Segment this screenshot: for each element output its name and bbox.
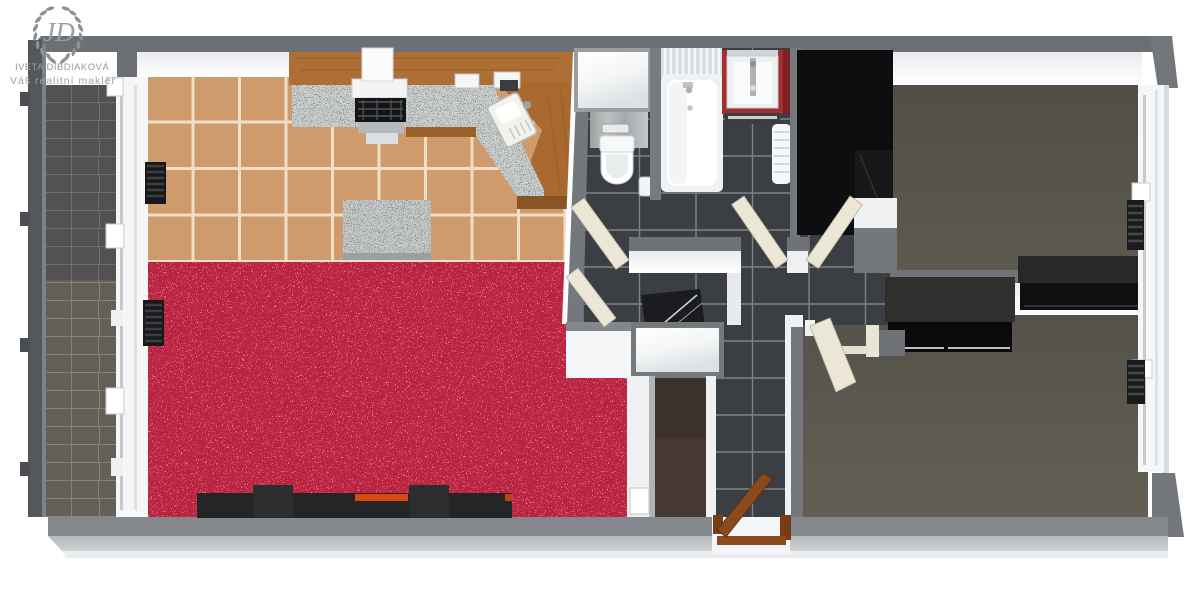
- svg-text:JD: JD: [43, 17, 75, 47]
- svg-text:Váš realitní makléř: Váš realitní makléř: [10, 75, 116, 87]
- svg-text:IVETA DIBDIAKOVÁ: IVETA DIBDIAKOVÁ: [15, 62, 109, 73]
